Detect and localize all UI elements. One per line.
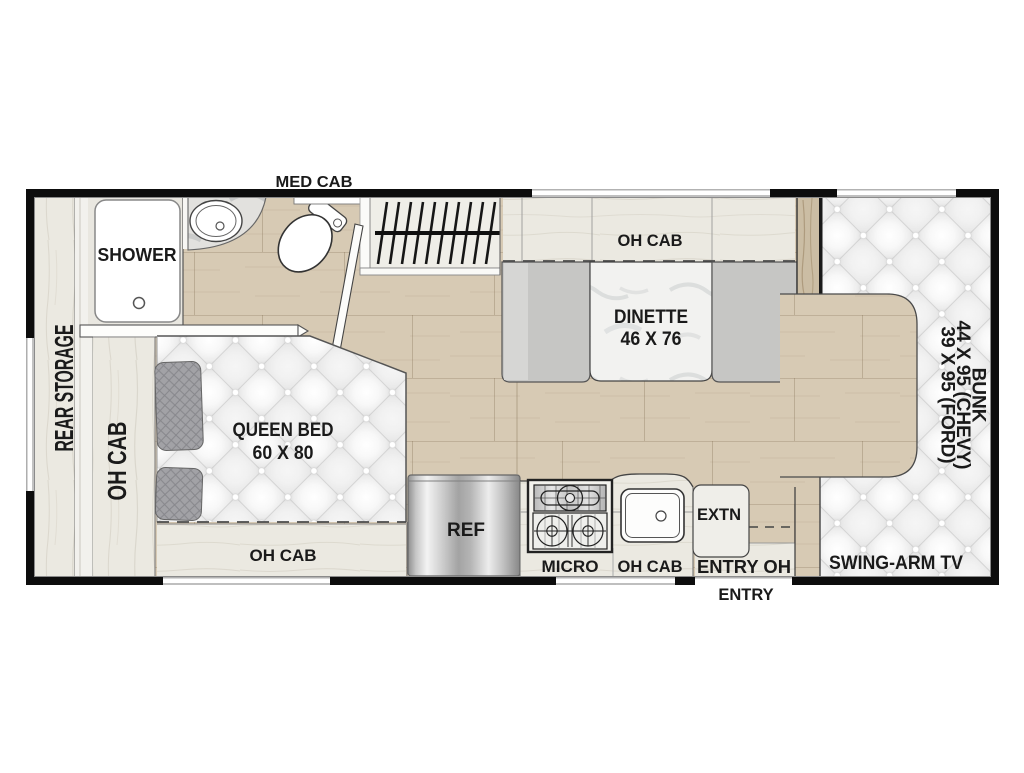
svg-text:MICRO: MICRO [542, 558, 599, 576]
svg-text:60 X 80: 60 X 80 [253, 443, 314, 464]
svg-text:SHOWER: SHOWER [98, 245, 177, 265]
svg-text:OH CAB: OH CAB [618, 558, 683, 576]
svg-text:REF: REF [447, 520, 485, 541]
svg-text:OH CAB: OH CAB [618, 232, 683, 250]
svg-text:ENTRY OH: ENTRY OH [697, 557, 791, 577]
svg-text:OH CAB: OH CAB [102, 422, 132, 501]
svg-text:MED CAB: MED CAB [276, 174, 353, 191]
svg-text:REAR STORAGE: REAR STORAGE [49, 325, 79, 452]
svg-text:39 X 95 (FORD): 39 X 95 (FORD) [937, 326, 958, 463]
svg-text:SWING-ARM TV: SWING-ARM TV [829, 552, 963, 574]
svg-text:OH CAB: OH CAB [250, 547, 317, 565]
svg-text:QUEEN BED: QUEEN BED [233, 420, 334, 441]
svg-text:46 X 76: 46 X 76 [621, 329, 682, 350]
svg-text:ENTRY: ENTRY [718, 586, 773, 604]
svg-text:DINETTE: DINETTE [614, 307, 688, 328]
svg-text:EXTN: EXTN [697, 506, 741, 524]
